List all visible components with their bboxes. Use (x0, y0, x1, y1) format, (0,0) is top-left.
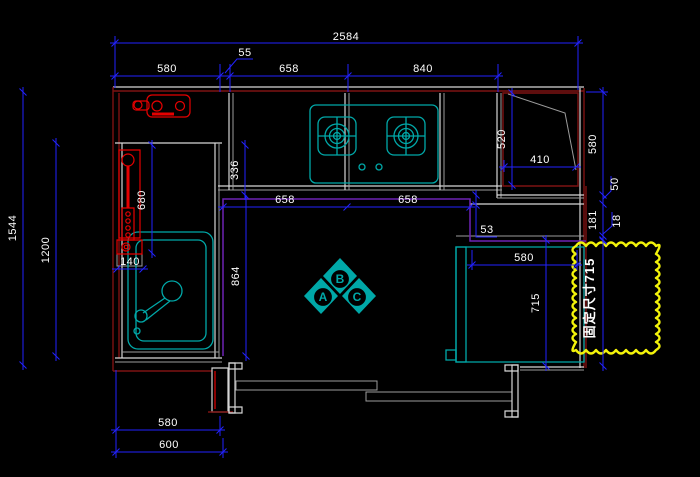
dimensions: 2584 580 55 658 840 410 580 658 (7, 31, 623, 458)
svg-text:680: 680 (136, 190, 148, 210)
svg-text:580: 580 (158, 417, 178, 429)
marker-letter-c: C (353, 290, 362, 304)
cabinet-lines (115, 93, 584, 358)
stove-knob (359, 164, 365, 170)
dim-base-658-right: 658 (347, 194, 470, 207)
wall-fixture-top (133, 95, 190, 117)
fridge-door-edge (456, 247, 466, 362)
door-leaf-1 (236, 381, 377, 390)
dim-left-1200: 1200 (40, 143, 56, 356)
svg-text:658: 658 (398, 194, 418, 206)
dim-filler-140: 140 (117, 256, 143, 269)
dim-pipe-680: 680 (136, 145, 152, 253)
dim-top-580: 580 (115, 63, 220, 76)
elevation-markers: B A C (304, 258, 376, 314)
marker-letter-a: A (319, 290, 328, 304)
stove-knob (376, 164, 382, 170)
dim-right-580: 580 (587, 92, 603, 195)
dim-right-181: 181 (587, 204, 603, 236)
svg-text:840: 840 (413, 63, 433, 75)
svg-text:580: 580 (587, 134, 599, 154)
dim-step-53: 53 (476, 195, 497, 237)
burner-right (387, 117, 425, 155)
drain (134, 328, 140, 334)
door-jamb-right (505, 365, 518, 417)
svg-text:18: 18 (611, 214, 623, 227)
dim-base-658-left: 658 (223, 194, 347, 207)
sliding-door (229, 363, 518, 417)
dim-upper-336: 336 (229, 145, 245, 195)
svg-text:520: 520 (496, 129, 508, 149)
dim-top-658: 658 (230, 63, 348, 76)
svg-text:580: 580 (157, 63, 177, 75)
base-counter-outline (223, 199, 586, 356)
svg-text:50: 50 (609, 177, 621, 190)
dim-corner-410: 410 (504, 154, 576, 167)
revision-cloud: 固定尺寸715 (573, 243, 660, 354)
svg-text:658: 658 (275, 194, 295, 206)
marker-letter-b: B (336, 272, 345, 286)
svg-text:2584: 2584 (333, 31, 359, 43)
dim-right-50: 50 (603, 176, 621, 204)
svg-text:580: 580 (514, 252, 534, 264)
faucet-base (135, 310, 147, 322)
svg-text:658: 658 (279, 63, 299, 75)
svg-text:55: 55 (238, 47, 251, 59)
svg-text:600: 600 (159, 439, 179, 451)
svg-text:140: 140 (120, 256, 140, 268)
burner-left (318, 117, 356, 155)
dim-top-total: 2584 (115, 31, 578, 43)
dim-bottom-600: 600 (116, 439, 223, 452)
svg-text:181: 181 (587, 210, 599, 230)
dim-top-55: 55 (220, 47, 253, 76)
dim-fridge-580: 580 (472, 252, 577, 265)
svg-text:410: 410 (530, 154, 550, 166)
floor-plan: B A C 固定尺寸715 (0, 0, 700, 477)
svg-text:715: 715 (530, 293, 542, 313)
door-leaf-2 (366, 392, 512, 401)
dim-right-18: 18 (603, 212, 623, 240)
sink (128, 232, 213, 349)
dim-lower-864: 864 (230, 195, 246, 356)
dim-left-1544: 1544 (7, 92, 23, 365)
cad-drawing-viewport[interactable]: B A C 固定尺寸715 (0, 0, 700, 477)
refrigerator (446, 247, 584, 362)
dim-top-840: 840 (348, 63, 498, 76)
svg-text:53: 53 (480, 224, 493, 236)
svg-text:864: 864 (230, 266, 242, 286)
cloud-note-text: 固定尺寸715 (582, 258, 597, 339)
dim-bottom-580: 580 (116, 417, 220, 430)
svg-text:336: 336 (229, 160, 241, 180)
fridge-foot (446, 350, 456, 360)
svg-text:1544: 1544 (7, 215, 19, 241)
gas-stove (310, 105, 438, 183)
svg-text:1200: 1200 (40, 237, 52, 263)
